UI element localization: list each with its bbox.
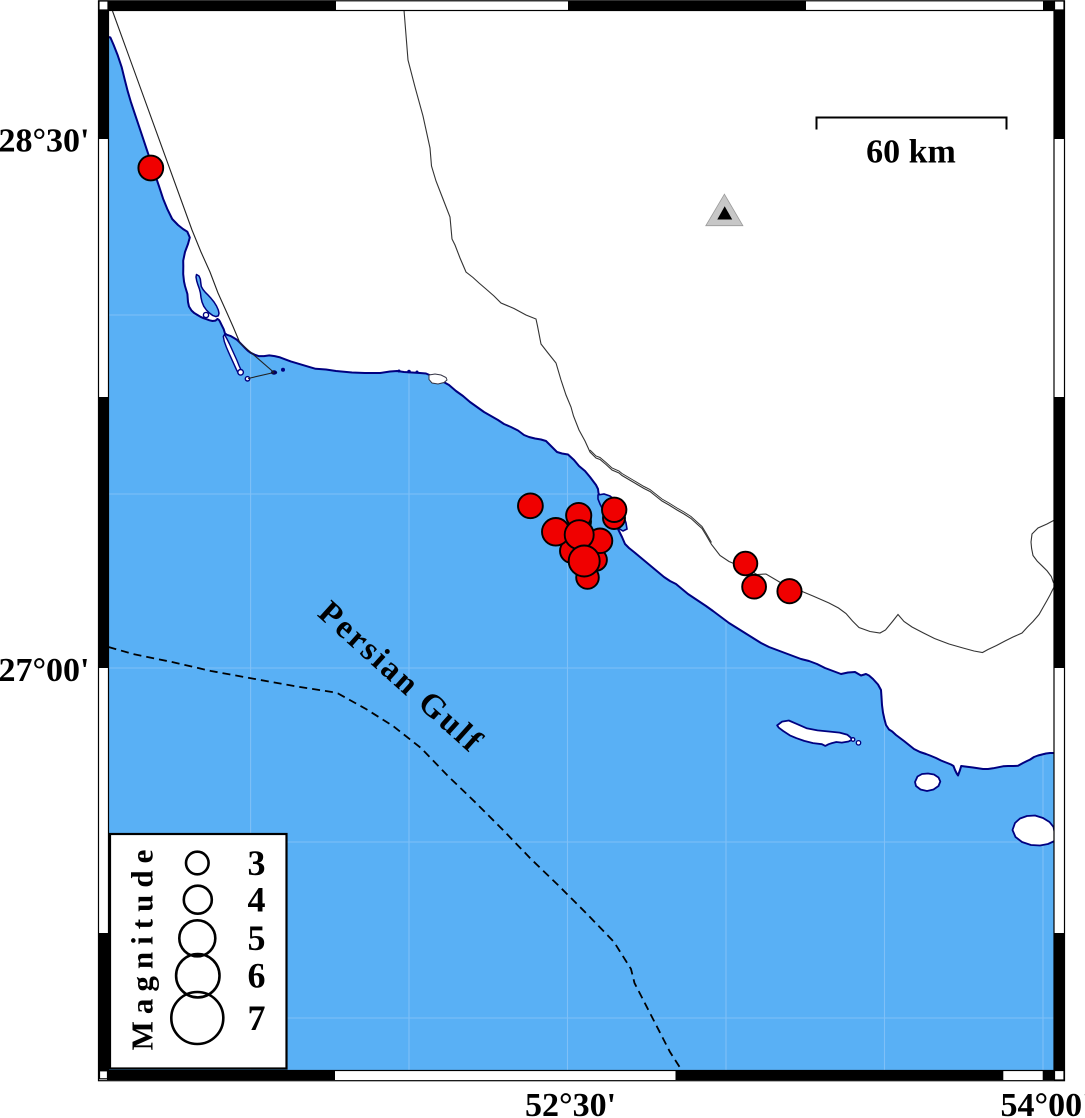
svg-text:Magnitude: Magnitude bbox=[124, 843, 159, 1051]
svg-text:4: 4 bbox=[248, 880, 266, 920]
svg-text:5: 5 bbox=[248, 918, 266, 958]
svg-text:3: 3 bbox=[248, 843, 266, 883]
svg-text:28°30': 28°30' bbox=[0, 123, 90, 160]
svg-text:60 km: 60 km bbox=[866, 134, 956, 171]
svg-text:52°30': 52°30' bbox=[525, 1087, 616, 1118]
svg-text:54°00': 54°00' bbox=[1000, 1087, 1085, 1118]
svg-text:27°00': 27°00' bbox=[0, 652, 90, 689]
svg-text:6: 6 bbox=[248, 956, 266, 996]
svg-text:7: 7 bbox=[248, 998, 266, 1038]
